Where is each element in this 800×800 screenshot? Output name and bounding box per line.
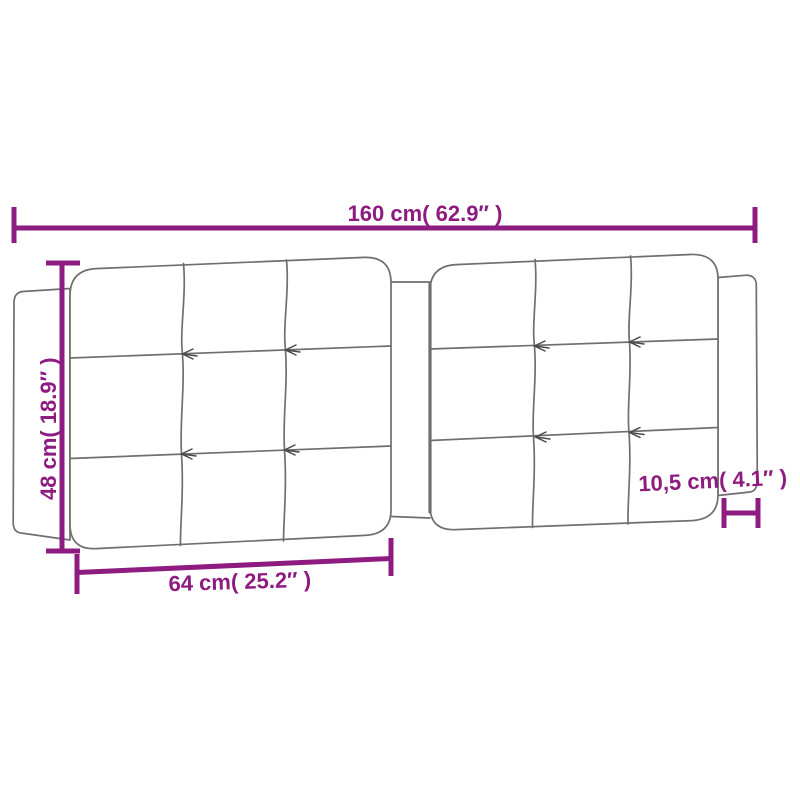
total-width-label: 160 cm( 62.9″ ): [348, 201, 503, 226]
left-panel-group: [70, 257, 391, 548]
height-label: 48 cm( 18.9″ ): [36, 357, 61, 500]
right-side-sliver: [718, 275, 757, 495]
diagram-canvas: 160 cm( 62.9″ ) 48 cm( 18.9″ ) 64 cm( 25…: [0, 0, 800, 800]
left-panel-outline: [70, 257, 391, 548]
middle-connector-bottom-edge: [391, 517, 430, 519]
depth-label: 10,5 cm( 4.1″ ): [638, 465, 788, 497]
headboard-dimension-diagram: 160 cm( 62.9″ ) 48 cm( 18.9″ ) 64 cm( 25…: [0, 0, 800, 800]
right-side-sliver-group: [718, 275, 757, 495]
panel-width-label: 64 cm( 25.2″ ): [168, 567, 311, 596]
headboard-outline-group: [13, 254, 757, 548]
